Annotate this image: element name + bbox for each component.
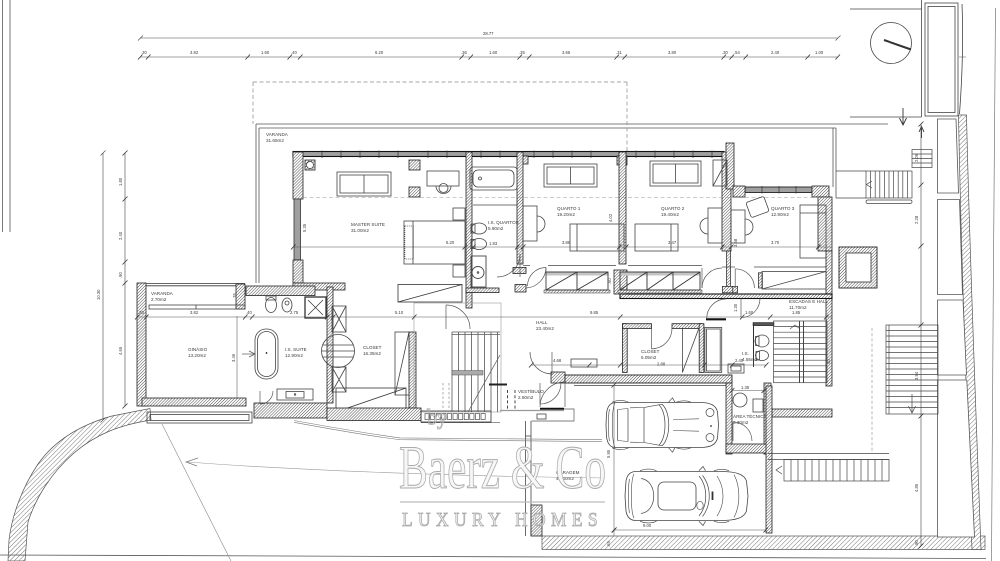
svg-text:.40: .40: [246, 310, 252, 315]
svg-text:3.82: 3.82: [190, 50, 199, 55]
svg-text:.65: .65: [606, 541, 611, 547]
svg-text:3.46: 3.46: [231, 353, 236, 362]
svg-text:3.80: 3.80: [668, 50, 677, 55]
svg-text:3.94: 3.94: [914, 371, 919, 380]
svg-text:2.40: 2.40: [771, 50, 780, 55]
svg-text:4.85: 4.85: [914, 483, 919, 492]
svg-text:5.10: 5.10: [395, 310, 404, 315]
svg-text:ÁREA TÉCNICA: ÁREA TÉCNICA: [733, 413, 768, 419]
svg-text:1.60: 1.60: [489, 50, 498, 55]
svg-text:I.S. QUARTOS: I.S. QUARTOS: [488, 220, 519, 225]
svg-text:5.90m2: 5.90m2: [488, 226, 504, 231]
svg-text:3.82: 3.82: [190, 310, 199, 315]
svg-text:3.58: 3.58: [733, 238, 738, 247]
svg-text:4.65: 4.65: [118, 346, 123, 355]
svg-text:1.80: 1.80: [118, 177, 123, 186]
svg-text:.35: .35: [519, 50, 525, 55]
svg-text:VARANDA: VARANDA: [151, 291, 174, 296]
svg-text:13.20m2: 13.20m2: [188, 353, 206, 358]
svg-text:16.35m2: 16.35m2: [363, 351, 381, 356]
svg-text:1.60: 1.60: [261, 50, 270, 55]
svg-text:2.40: 2.40: [118, 231, 123, 240]
svg-text:4.68: 4.68: [553, 358, 562, 363]
svg-text:CLOSET: CLOSET: [641, 349, 660, 354]
svg-text:.90: .90: [914, 540, 919, 546]
svg-text:HALL: HALL: [536, 320, 548, 325]
svg-text:Baerz & Co: Baerz & Co: [399, 435, 606, 502]
svg-text:1.60: 1.60: [745, 310, 754, 315]
svg-text:GINÁSIO: GINÁSIO: [188, 346, 208, 352]
svg-text:23.40m2: 23.40m2: [536, 326, 554, 331]
svg-text:.40: .40: [291, 50, 297, 55]
svg-text:19.40m2: 19.40m2: [661, 212, 679, 217]
svg-text:31.65m2: 31.65m2: [266, 138, 284, 143]
svg-text:3.70: 3.70: [771, 240, 780, 245]
svg-text:3.47: 3.47: [668, 240, 677, 245]
svg-text:10.30: 10.30: [96, 289, 101, 300]
svg-text:I.S. SUITE: I.S. SUITE: [285, 347, 307, 352]
svg-text:9.00: 9.00: [643, 523, 652, 528]
svg-text:.31: .31: [616, 50, 622, 55]
svg-text:1.30: 1.30: [733, 303, 738, 312]
svg-text:LUXURY HOMES: LUXURY HOMES: [402, 510, 603, 531]
svg-text:.30: .30: [141, 50, 147, 55]
svg-text:3.86: 3.86: [562, 240, 571, 245]
svg-text:1.85: 1.85: [792, 310, 801, 315]
svg-text:I.S.: I.S.: [742, 351, 749, 356]
svg-text:28.77: 28.77: [483, 31, 494, 36]
svg-text:4.02: 4.02: [608, 213, 613, 222]
svg-text:2.40: 2.40: [735, 358, 744, 363]
svg-text:.54: .54: [734, 50, 740, 55]
svg-text:QUARTO 1: QUARTO 1: [557, 206, 581, 211]
svg-text:ESCADAS E HALL: ESCADAS E HALL: [789, 299, 829, 304]
svg-text:1.83: 1.83: [489, 241, 498, 246]
svg-text:QUARTO 2: QUARTO 2: [661, 206, 685, 211]
svg-text:5.35: 5.35: [302, 223, 307, 232]
svg-text:QUARTO 3: QUARTO 3: [771, 206, 795, 211]
svg-text:VARANDA: VARANDA: [266, 132, 289, 137]
svg-text:5.05m2: 5.05m2: [641, 355, 657, 360]
svg-text:2.75: 2.75: [290, 310, 299, 315]
svg-text:2.60m2: 2.60m2: [518, 395, 534, 400]
svg-text:.76: .76: [232, 293, 237, 299]
svg-text:19.20m2: 19.20m2: [557, 212, 575, 217]
svg-text:5.95: 5.95: [606, 449, 611, 458]
svg-text:12.90m2: 12.90m2: [285, 353, 303, 358]
svg-text:.36: .36: [461, 50, 467, 55]
svg-text:2.88: 2.88: [657, 362, 666, 367]
svg-text:6.20: 6.20: [375, 50, 384, 55]
svg-text:3.30m2: 3.30m2: [733, 420, 749, 425]
svg-text:MASTER SUITE: MASTER SUITE: [351, 222, 385, 227]
svg-text:.30: .30: [138, 310, 144, 315]
svg-text:CLOSET: CLOSET: [363, 345, 382, 350]
svg-text:6.20: 6.20: [446, 240, 455, 245]
svg-text:31.00m2: 31.00m2: [351, 228, 369, 233]
svg-text:3.66: 3.66: [562, 50, 571, 55]
svg-text:4.55m2: 4.55m2: [742, 357, 758, 362]
svg-text:9.85: 9.85: [590, 310, 599, 315]
svg-text:2.70m2: 2.70m2: [151, 297, 167, 302]
svg-text:1.00: 1.00: [815, 50, 824, 55]
svg-text:by: by: [427, 405, 447, 430]
svg-text:.30: .30: [722, 50, 728, 55]
svg-text:2.28: 2.28: [914, 215, 919, 224]
svg-text:1.35: 1.35: [741, 385, 750, 390]
svg-text:12.90m2: 12.90m2: [771, 212, 789, 217]
svg-text:.90: .90: [118, 272, 123, 278]
svg-text:2.06: 2.06: [914, 153, 919, 162]
